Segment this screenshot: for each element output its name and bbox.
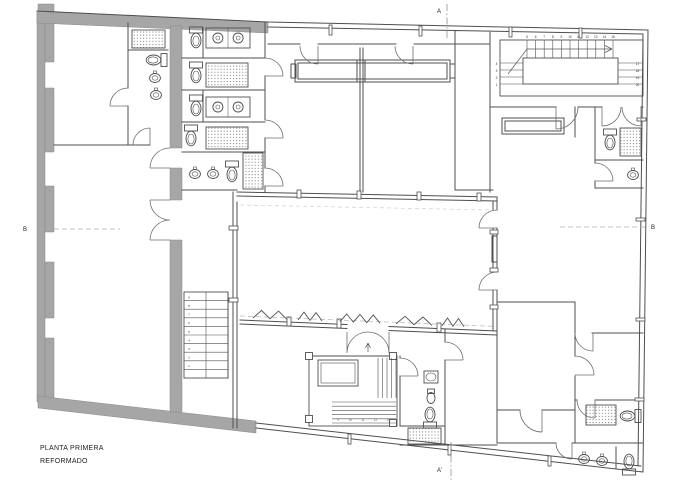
folding-partition [442,318,464,327]
left-staircase: 987654321 [184,292,228,378]
shower-tray [132,30,165,48]
stair-step-number: 13 [594,35,598,39]
toilet [226,161,239,182]
folding-partition [396,316,432,325]
stair-step-number: 17 [636,62,640,66]
upper-right-staircase: 56789101112131415417318219120 [496,35,643,96]
stair-step-number: 1 [188,364,190,368]
stair-step-number: 11 [361,418,364,422]
stair-step-number: 10 [349,418,353,422]
floor-plan-canvas: 5678910111213141541731821912098765432191… [0,0,690,487]
stair-step-number: 1 [496,83,498,87]
courtyard-axis-dash-top [240,205,493,210]
stair-step-number: 7 [543,35,545,39]
double-sink-counter [206,97,250,117]
shower-tray [408,428,441,444]
bidet [427,389,435,404]
shower-tray [243,153,263,189]
toilet [190,62,203,83]
window-mullions [229,25,646,466]
stair-step-number: 3 [496,69,498,73]
structural-column [306,353,313,360]
toilet [185,125,198,146]
stairs-layer: 5678910111213141541731821912098765432191… [184,35,643,426]
stair-step-number: 18 [636,69,640,73]
shower-tray [206,127,248,149]
central-masonry-wall [170,26,182,412]
door-arcs [110,46,641,459]
desk-unit [502,118,564,134]
stair-step-number: 19 [636,76,640,80]
toilet [190,95,203,116]
section-marker-b-left: B [23,227,27,233]
stair-step-number: 5 [188,330,190,334]
stair-step-number: 15 [611,35,615,39]
folding-partitions-layer [253,310,464,326]
wardrobe-unit [291,60,455,82]
structural-column [390,353,397,360]
folding-partition [340,314,380,323]
stair-step-number: 8 [552,35,554,39]
washbasin [150,71,161,83]
structural-column [306,416,313,423]
toilet [424,407,437,428]
stair-step-number: 2 [188,356,190,360]
stair-step-number: 9 [561,35,563,39]
shower-tray [620,128,641,156]
section-marker-b-right: B [651,225,655,231]
stair-step-number: 14 [603,35,607,39]
stair-step-number: 6 [535,35,537,39]
stair-step-number: 4 [188,338,190,342]
door-swings [110,46,641,459]
washbasin [579,452,590,464]
stair-step-number: 12 [374,418,378,422]
plan-title-line2: REFORMADO [40,458,88,465]
toilet [620,410,641,423]
washbasin [151,88,162,100]
stair-step-number: 4 [496,62,498,66]
stair-step-number: 9 [337,418,339,422]
partition-walls [37,11,648,472]
stair-step-number: 8 [188,304,190,308]
stair-step-number: 10 [568,35,572,39]
washbasin [597,454,608,466]
stair-step-number: 20 [636,83,640,87]
stair-step-number: 7 [188,313,190,317]
folding-partition [298,312,322,321]
fixtures-layer [132,27,641,475]
washbasin [208,167,219,179]
washbasin [424,371,438,383]
washbasin [628,168,639,180]
stair-step-number: 3 [188,347,190,351]
section-marker-a-bottom: A' [437,468,442,474]
title-block: PLANTA PRIMERA REFORMADO [40,445,104,465]
stair-step-number: 9 [188,295,190,299]
floor-plan-drawing: 5678910111213141541731821912098765432191… [0,0,690,487]
stair-step-number: 5 [526,35,528,39]
plan-title-line1: PLANTA PRIMERA [40,445,104,452]
interior-partitions [37,11,648,472]
stair-step-number: 2 [496,76,498,80]
stair-step-number: 12 [585,35,589,39]
shower-tray [586,405,616,425]
toilet [604,129,617,150]
stair-step-number: 6 [188,321,190,325]
left-exterior-wall [37,11,45,402]
stair-step-number: 11 [577,35,581,39]
stair-step-number: 13 [386,418,390,422]
section-marker-a-top: A [437,9,441,15]
washbasin [190,167,201,179]
toilet [146,54,167,67]
bottom-exterior-wall [38,396,256,433]
shower-tray [206,63,248,87]
